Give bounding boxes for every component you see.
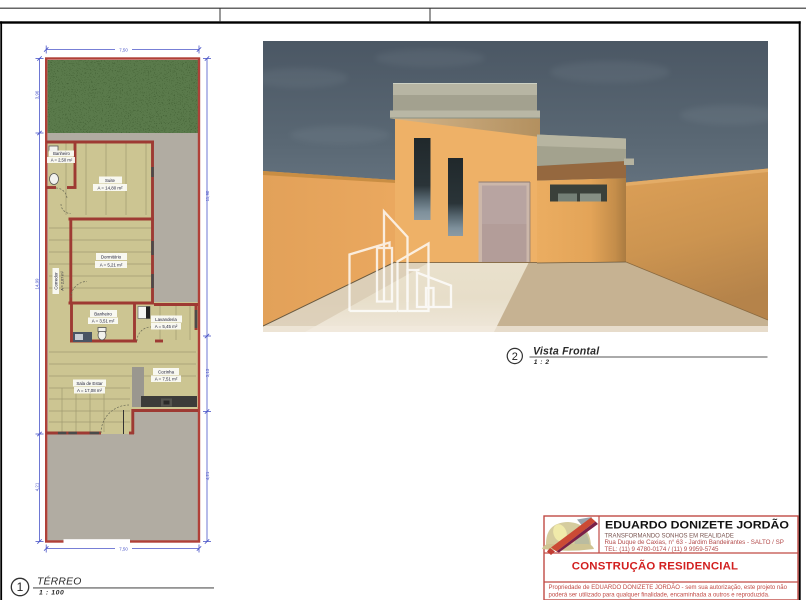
svg-text:Lavanderia: Lavanderia <box>155 317 177 322</box>
svg-text:Suite: Suite <box>105 178 116 183</box>
svg-text:Sala de Estar: Sala de Estar <box>76 381 103 386</box>
svg-text:Corredor: Corredor <box>54 272 59 290</box>
svg-text:14,99: 14,99 <box>35 278 40 290</box>
svg-text:Banheiro: Banheiro <box>53 151 70 156</box>
svg-text:A = 2,07 m²: A = 2,07 m² <box>61 271 65 291</box>
svg-text:CONSTRUÇÃO RESIDENCIAL: CONSTRUÇÃO RESIDENCIAL <box>572 560 738 573</box>
svg-text:A = 3,51 m²: A = 3,51 m² <box>92 319 115 324</box>
svg-text:EDUARDO DONIZETE JORDÃO: EDUARDO DONIZETE JORDÃO <box>605 519 789 532</box>
svg-text:Propriedade de EDUARDO DONIZET: Propriedade de EDUARDO DONIZETE JORDÃO -… <box>549 584 788 591</box>
svg-text:1 : 2: 1 : 2 <box>534 359 550 366</box>
svg-text:3,13: 3,13 <box>205 368 210 377</box>
svg-text:2: 2 <box>512 351 518 363</box>
svg-text:7,50: 7,50 <box>119 547 128 552</box>
svg-text:Dormitório: Dormitório <box>101 255 122 260</box>
svg-text:A = 5,21 m²: A = 5,21 m² <box>100 263 123 268</box>
svg-text:poderá ser utilizado para qual: poderá ser utilizado para qualquer final… <box>549 593 770 599</box>
svg-text:Banheiro: Banheiro <box>94 312 112 317</box>
svg-text:A = 7,51 m²: A = 7,51 m² <box>155 377 178 382</box>
svg-text:A = 2,50 m²: A = 2,50 m² <box>51 158 73 163</box>
svg-text:A = 14,80 m²: A = 14,80 m² <box>97 186 123 191</box>
svg-text:1 : 100: 1 : 100 <box>39 590 64 597</box>
svg-text:1: 1 <box>17 580 24 594</box>
svg-text:A = 5,45 m²: A = 5,45 m² <box>155 324 178 329</box>
svg-text:4,21: 4,21 <box>205 471 210 480</box>
svg-text:11,90: 11,90 <box>205 190 210 201</box>
svg-text:7,50: 7,50 <box>119 48 128 53</box>
svg-text:TÉRREO: TÉRREO <box>37 575 82 588</box>
svg-text:3,96: 3,96 <box>35 90 40 99</box>
svg-text:TEL: (11) 9 4780-0174 / (11) 9: TEL: (11) 9 4780-0174 / (11) 9 9959-5745 <box>605 546 720 553</box>
svg-text:4,21: 4,21 <box>35 482 40 491</box>
svg-text:Cozinha: Cozinha <box>158 370 175 375</box>
svg-text:Vista Frontal: Vista Frontal <box>533 346 600 358</box>
svg-text:A = 17,08 m²: A = 17,08 m² <box>77 388 103 393</box>
